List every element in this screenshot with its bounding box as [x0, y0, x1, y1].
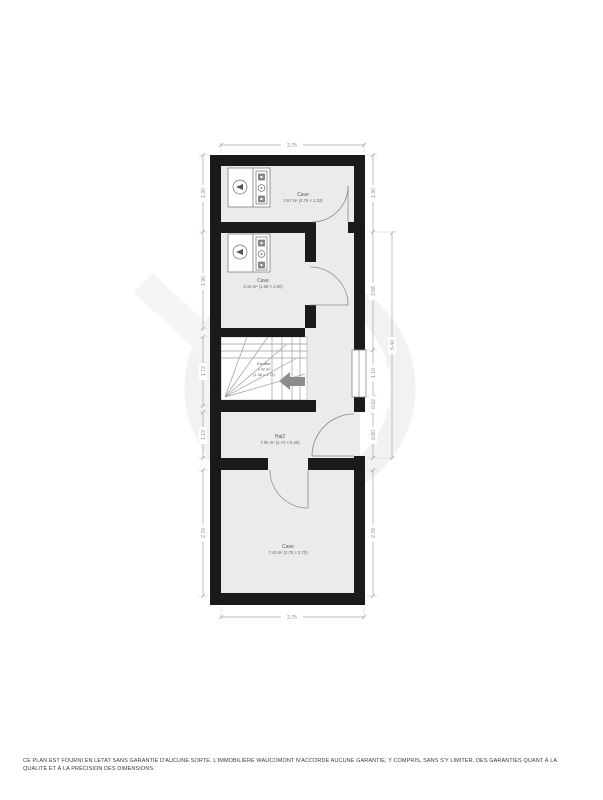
room-label-stairs: Escalier [257, 362, 271, 366]
disclaimer-line-2: QUALITÉ ET À LA PRÉCISION DES DIMENSIONS… [23, 765, 583, 773]
room-area-cave-top: 3.67 m² (2.76 × 1.33) [283, 198, 323, 203]
room-area-stairs: 2.42 m² [258, 368, 272, 372]
dim-right-0: 1.30 [371, 188, 377, 198]
dim-right-overall: 5.40 [390, 340, 396, 350]
dim-left-2: 1.72 [201, 366, 207, 376]
dim-left-4: 2.70 [201, 528, 207, 538]
dim-right-2: 1.10 [371, 368, 377, 378]
appliances-cave-top [228, 168, 270, 207]
disclaimer: CE PLAN EST FOURNI EN LETAT SANS GARANTI… [23, 757, 583, 773]
floor-plan: 2.75 2.75 1.30 1.90 1.72 1.19 2.70 1.30 … [0, 0, 603, 800]
room-dims-stairs: (1.36 × 1.72) [253, 373, 275, 377]
disclaimer-line-1: CE PLAN EST FOURNI EN LETAT SANS GARANTI… [23, 757, 583, 765]
room-area-cave-mid: 3.18 m² (1.68 × 1.90) [243, 284, 283, 289]
room-area-cave-bottom: 7.43 m² (2.75 × 2.70) [268, 550, 308, 555]
dim-right-1: 2.68 [371, 286, 377, 296]
room-area-hall: 7.05 m² (2.74 × 5.40) [260, 440, 300, 445]
dim-right-5: 2.70 [371, 528, 377, 538]
dim-bottom: 2.75 [287, 615, 297, 621]
window [352, 350, 366, 397]
dim-top: 2.75 [287, 143, 297, 149]
dim-left-3: 1.19 [201, 430, 207, 440]
dim-right-4: 0.80 [371, 430, 377, 440]
dim-right-3: 0.62 [371, 399, 377, 409]
dim-left-0: 1.30 [201, 188, 207, 198]
dim-left-1: 1.90 [201, 276, 207, 286]
appliances-cave-mid [228, 234, 270, 272]
